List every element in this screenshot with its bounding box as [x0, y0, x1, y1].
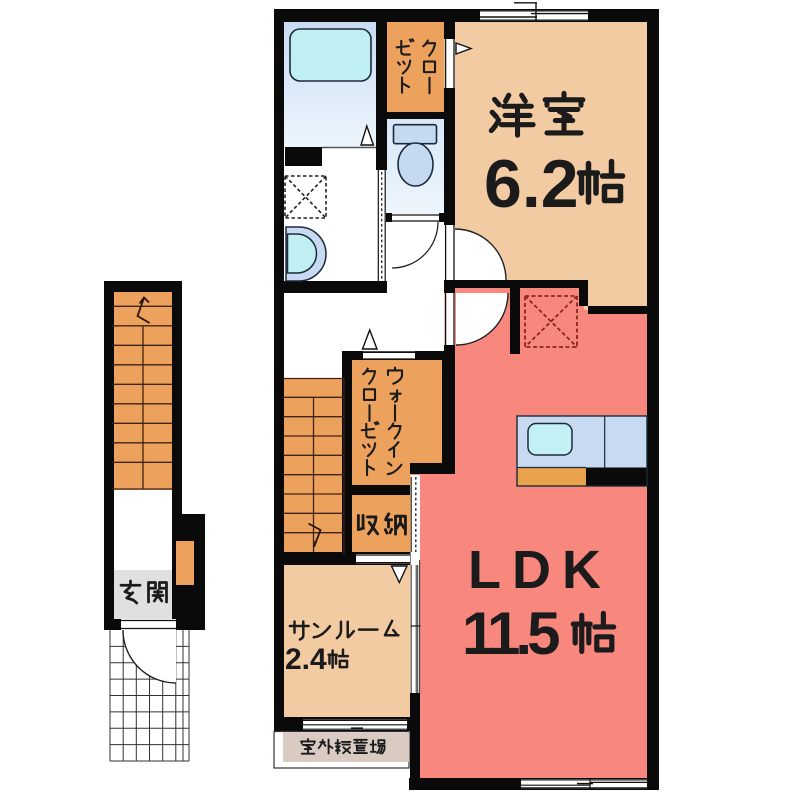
svg-text:11.5: 11.5 [462, 600, 559, 667]
svg-text:LDK: LDK [468, 540, 612, 600]
svg-text:2.4: 2.4 [285, 643, 327, 676]
svg-text:6.2: 6.2 [484, 146, 579, 222]
